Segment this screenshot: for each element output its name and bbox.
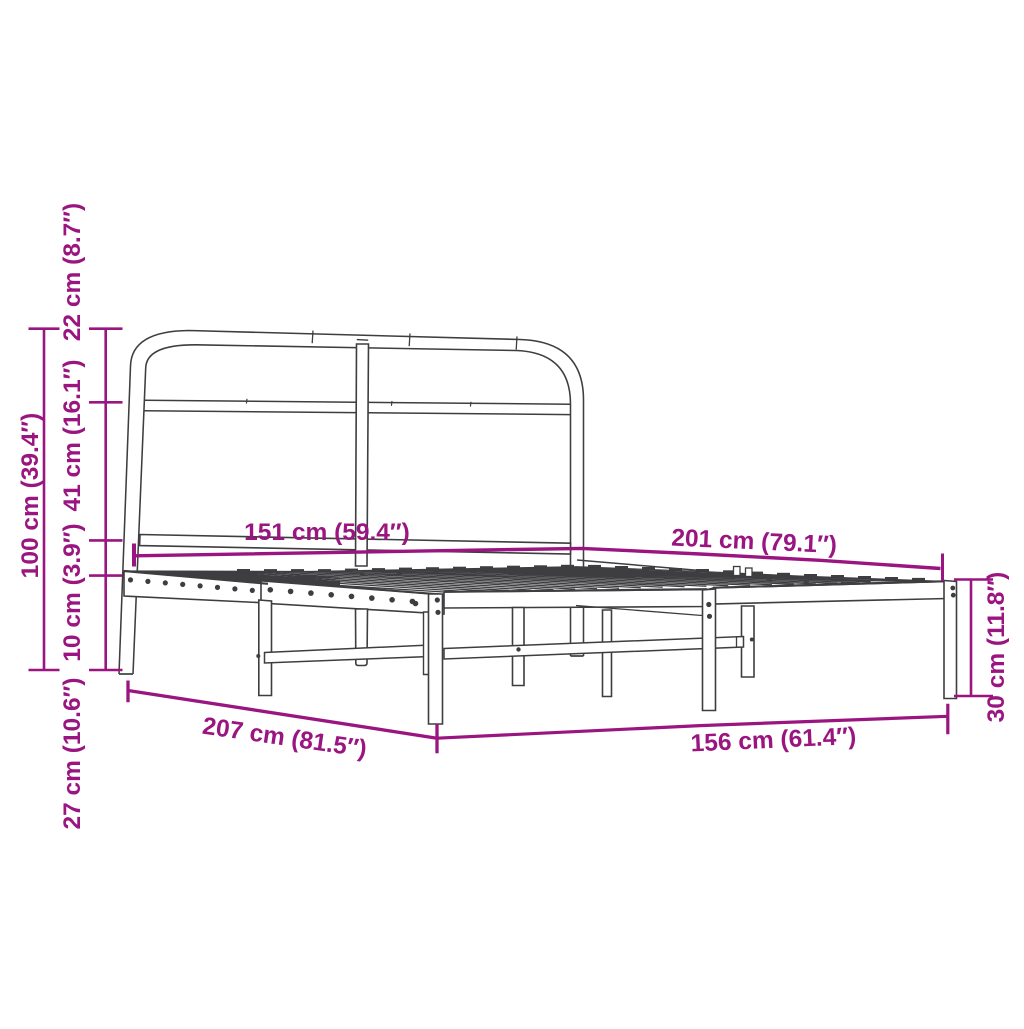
svg-text:22 cm (8.7″): 22 cm (8.7″)	[59, 203, 86, 341]
svg-text:30 cm (11.8″): 30 cm (11.8″)	[983, 572, 1010, 723]
svg-text:27 cm (10.6″): 27 cm (10.6″)	[59, 677, 86, 829]
svg-text:41 cm (16.1″): 41 cm (16.1″)	[59, 359, 86, 511]
svg-text:100 cm (39.4″): 100 cm (39.4″)	[17, 413, 44, 579]
svg-text:207 cm (81.5″): 207 cm (81.5″)	[201, 713, 369, 763]
svg-text:151 cm (59.4″): 151 cm (59.4″)	[244, 519, 410, 546]
svg-text:156 cm (61.4″): 156 cm (61.4″)	[690, 723, 857, 757]
svg-text:10 cm (3.9″): 10 cm (3.9″)	[59, 523, 86, 661]
